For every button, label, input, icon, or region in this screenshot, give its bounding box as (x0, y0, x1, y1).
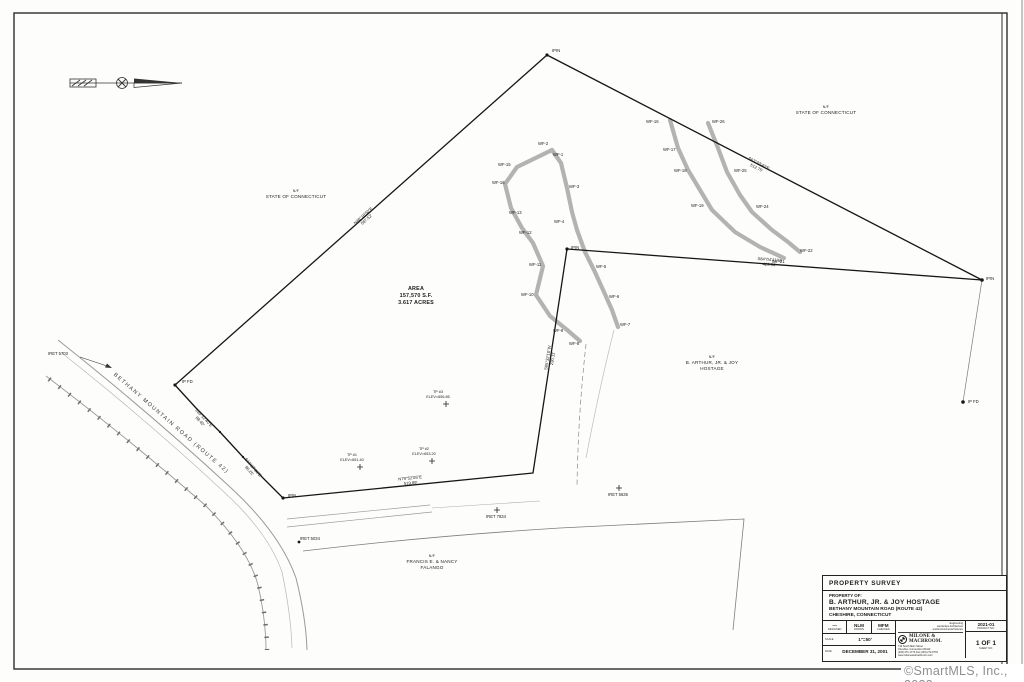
monument-iret-5034: IRET 5034 (300, 536, 320, 541)
wetland-flag: WF-10 (521, 292, 534, 297)
monument-iret-5635: IRET 5635 (608, 492, 628, 497)
area-label: AREA 157,570 S.F. 3.617 ACRES (398, 286, 434, 307)
wetland-flag: WF-1 (553, 152, 563, 157)
stream-lines (577, 330, 614, 486)
road-hatch-ticks (49, 379, 267, 650)
wetland-flag: WF-25 (734, 168, 747, 173)
monument-ipin-right: IPIN (986, 276, 994, 281)
wetland-flag: WF-9 (553, 328, 563, 333)
spot-elevation-3: TP #3ELEV=656.85 (426, 390, 450, 399)
designed-cell: — DESIGNED (823, 621, 847, 633)
monument-iret-5703: IRET 5703 (48, 351, 68, 356)
survey-sheet: AREA 157,570 S.F. 3.617 ACRES BETHANY MO… (0, 0, 1024, 682)
wetland-flag: WF-3 (569, 184, 579, 189)
monument-iret-7834: IRET 7834 (486, 514, 506, 519)
property-of-label: PROPERTY OF: (829, 593, 1000, 598)
wetland-flag: WF-17 (663, 147, 676, 152)
monument-markers (173, 53, 983, 543)
north-arrow-icon (70, 78, 182, 89)
cross-markers (357, 401, 622, 513)
spot-elevation-1: TP #1ELEV=651.40 (340, 453, 364, 462)
tie-line (963, 280, 982, 402)
wetland-flag: WF-21 (772, 259, 785, 264)
wetland-flag: WF-11 (529, 262, 541, 267)
wetland-flag: WF-4 (554, 219, 564, 224)
firm-cell: Engineering Landscape Architecture and E… (896, 621, 966, 658)
title-block: PROPERTY SURVEY PROPERTY OF: B. ARTHUR, … (822, 575, 1007, 662)
adjoiner-state-west: N/F STATE OF CONNECTICUT (266, 189, 326, 200)
checked-cell: MFM CHECKED (872, 621, 895, 633)
watermark: ©SmartMLS, Inc., 2023 (901, 664, 1024, 682)
adjoiner-lines (287, 501, 744, 630)
wetland-flag: WF-16 (646, 119, 659, 124)
monument-ipfd-left: IP FD (182, 379, 193, 384)
monument-ipin-bottom: IPIN (288, 493, 296, 498)
wetland-flag: WF-19 (691, 203, 704, 208)
wetland-flag: WF-7 (620, 322, 630, 327)
firm-name: MILONE & MACBROOM. (909, 634, 963, 644)
monument-ipin-top: IPIN (552, 48, 560, 53)
property-address: BETHANY MOUNTAIN ROAD (ROUTE 42) (829, 607, 1000, 612)
wetland-flag: WF-24 (756, 204, 769, 209)
parcel-boundary (175, 55, 982, 498)
owner-name: B. ARTHUR, JR. & JOY HOSTAGE (829, 599, 1000, 606)
monument-ipfd-right: IP FD (968, 399, 979, 404)
wetland-flag: WF-5 (596, 264, 606, 269)
wetland-flag: WF-12 (519, 230, 532, 235)
adjoiner-state-east: N/F STATE OF CONNECTICUT (796, 105, 856, 116)
property-city: CHESHIRE, CONNECTICUT (829, 613, 1000, 618)
firm-address: 716 South Main Street Cheshire, Connecti… (898, 645, 963, 658)
wetland-flag: WF-18 (674, 168, 687, 173)
leader-arrow (80, 357, 112, 368)
date-cell: DATE DECEMBER 31, 2001 (823, 646, 895, 657)
scan-edge (1021, 0, 1023, 682)
wetland-flag: WF-15 (498, 162, 511, 167)
scale-cell: SCALE 1"=50' (823, 634, 895, 646)
spot-elevation-2: TP #2ELEV=653.20 (412, 447, 436, 456)
monument-ipin-mid: IPIN (571, 245, 579, 250)
sheet-border (14, 13, 1007, 669)
wetland-flag: WF-13 (509, 210, 522, 215)
sheet-number-cell: 1 OF 1 SHEET NO. (966, 632, 1006, 658)
adjoiner-hostage: N/F B. ARTHUR, JR. & JOY HOSTAGE (686, 355, 738, 372)
adjoiner-falango: N/F FRANCIS E. & NANCY FALANGO (406, 554, 457, 571)
milone-macbroom-logo-icon (898, 635, 907, 644)
wetland-flag: WF-2 (538, 141, 548, 146)
project-number-cell: 2021-01 PROJECT NO. (966, 621, 1006, 632)
wetland-flag: WF-6 (609, 294, 619, 299)
wetland-flag: WF-8 (569, 341, 579, 346)
wetland-flag: WF-16 (492, 180, 505, 185)
wetland-lines (505, 120, 800, 341)
wetland-flag: WF-26 (712, 119, 725, 124)
drawn-cell: NLM DRAWN (847, 621, 871, 633)
title-block-title: PROPERTY SURVEY (823, 576, 1006, 591)
wetland-flag: WF-22 (800, 248, 813, 253)
